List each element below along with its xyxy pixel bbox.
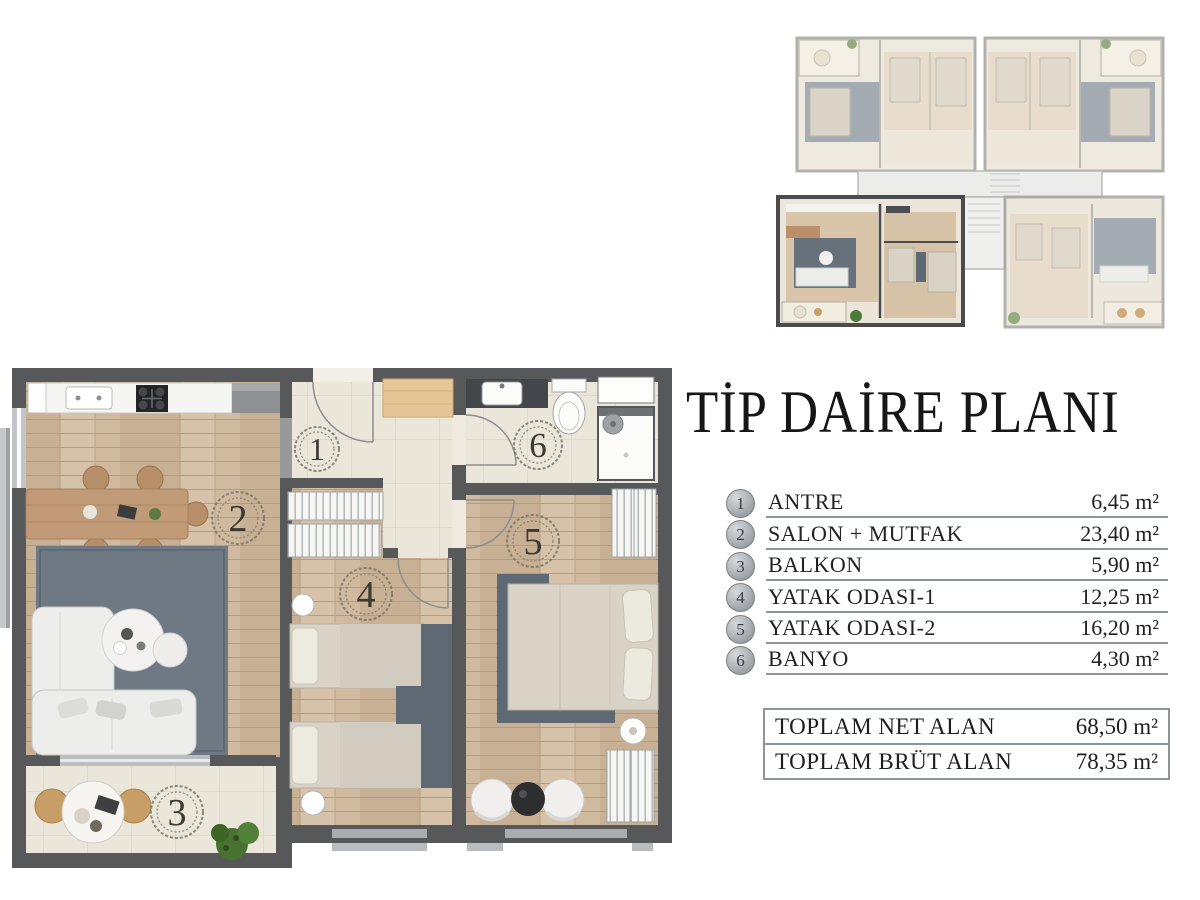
room-area: 5,90 m² [1091, 552, 1159, 578]
total-brut-row: TOPLAM BRÜT ALAN 78,35 m² [763, 743, 1170, 780]
legend-row: 1 ANTRE6,45 m² [713, 487, 1168, 518]
kitchen-counter [28, 383, 280, 413]
apartment-floor-plan: 1 2 3 4 5 6 [0, 355, 680, 880]
key-unit-bottom-right [1005, 197, 1163, 327]
svg-text:6: 6 [529, 426, 547, 465]
key-unit-top-left [797, 38, 975, 171]
room-number-badge: 2 [726, 520, 755, 549]
legend-row: 2 SALON + MUTFAK23,40 m² [713, 518, 1168, 549]
totals-table: TOPLAM NET ALAN 68,50 m² TOPLAM BRÜT ALA… [763, 708, 1170, 780]
legend-row: 4 YATAK ODASI-112,25 m² [713, 581, 1168, 612]
key-unit-top-right [985, 38, 1163, 171]
kitchen-sink [66, 387, 112, 409]
svg-text:3: 3 [168, 792, 187, 834]
total-brut-label: TOPLAM BRÜT ALAN [775, 749, 1012, 775]
entry-cabinet [383, 379, 453, 417]
floor-plan-page: 1 2 3 4 5 6 [0, 0, 1200, 900]
room-area: 6,45 m² [1091, 489, 1159, 515]
side-table [511, 782, 545, 816]
double-bed [508, 584, 658, 710]
room-number-badge: 1 [726, 489, 755, 518]
room-name: ANTRE [768, 489, 844, 515]
room-name: YATAK ODASI-1 [768, 584, 936, 610]
room-area: 12,25 m² [1080, 584, 1159, 610]
plant-dot [850, 310, 862, 322]
room-area: 23,40 m² [1080, 521, 1159, 547]
legend-row: 6 BANYO4,30 m² [713, 644, 1168, 675]
total-brut-value: 78,35 m² [1076, 749, 1158, 775]
room-name: SALON + MUTFAK [768, 521, 963, 547]
bath-niche [598, 377, 654, 403]
single-bed [290, 624, 423, 688]
room-name: YATAK ODASI-2 [768, 615, 936, 641]
key-unit-highlighted [778, 197, 963, 325]
svg-text:1: 1 [309, 431, 325, 467]
building-key-plan [775, 25, 1165, 340]
legend-row: 5 YATAK ODASI-216,20 m² [713, 613, 1168, 644]
room-number-badge: 5 [726, 615, 755, 644]
room-legend: 1 ANTRE6,45 m² 2 SALON + MUTFAK23,40 m² … [713, 487, 1168, 675]
bedside-lamp [292, 594, 314, 616]
shower [598, 407, 654, 480]
single-bed [290, 722, 421, 788]
total-net-label: TOPLAM NET ALAN [775, 714, 995, 740]
legend-row: 3 BALKON5,90 m² [713, 550, 1168, 581]
room-area: 16,20 m² [1080, 615, 1159, 641]
room-name: BALKON [768, 552, 863, 578]
toilet [552, 379, 586, 434]
total-net-value: 68,50 m² [1076, 714, 1158, 740]
room-name: BANYO [768, 646, 849, 672]
page-title: TİP DAİRE PLANI [686, 378, 1144, 447]
wardrobe-bedroom1 [288, 492, 383, 557]
total-net-row: TOPLAM NET ALAN 68,50 m² [763, 708, 1170, 745]
room-area: 4,30 m² [1091, 646, 1159, 672]
stove [136, 385, 168, 412]
adjacent-structure [0, 428, 10, 628]
room-number-badge: 6 [726, 646, 755, 675]
entrance-opening [313, 368, 373, 382]
room-number-badge: 3 [726, 552, 755, 581]
svg-text:4: 4 [357, 574, 376, 616]
room-number-badge: 4 [726, 583, 755, 612]
svg-text:2: 2 [229, 498, 248, 540]
bedside-lamp [301, 791, 325, 815]
svg-text:5: 5 [524, 521, 543, 563]
